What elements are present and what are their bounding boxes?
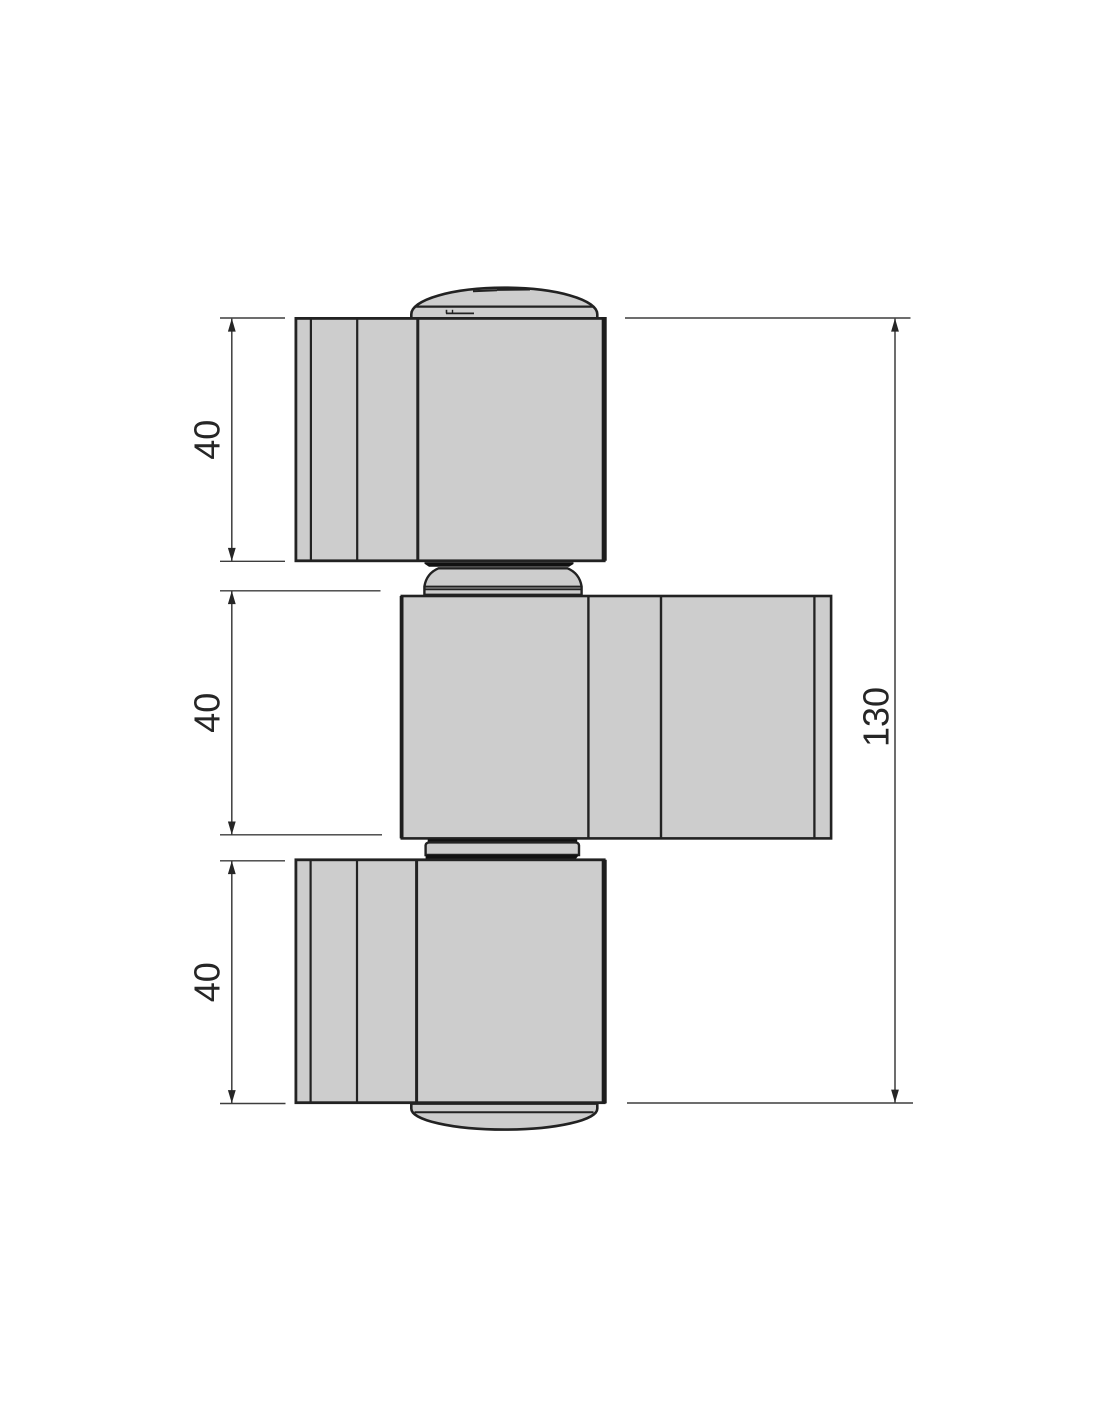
svg-text:130: 130 (856, 687, 897, 747)
svg-text:40: 40 (187, 962, 228, 1002)
svg-text:40: 40 (187, 420, 228, 460)
svg-text:40: 40 (187, 693, 228, 733)
